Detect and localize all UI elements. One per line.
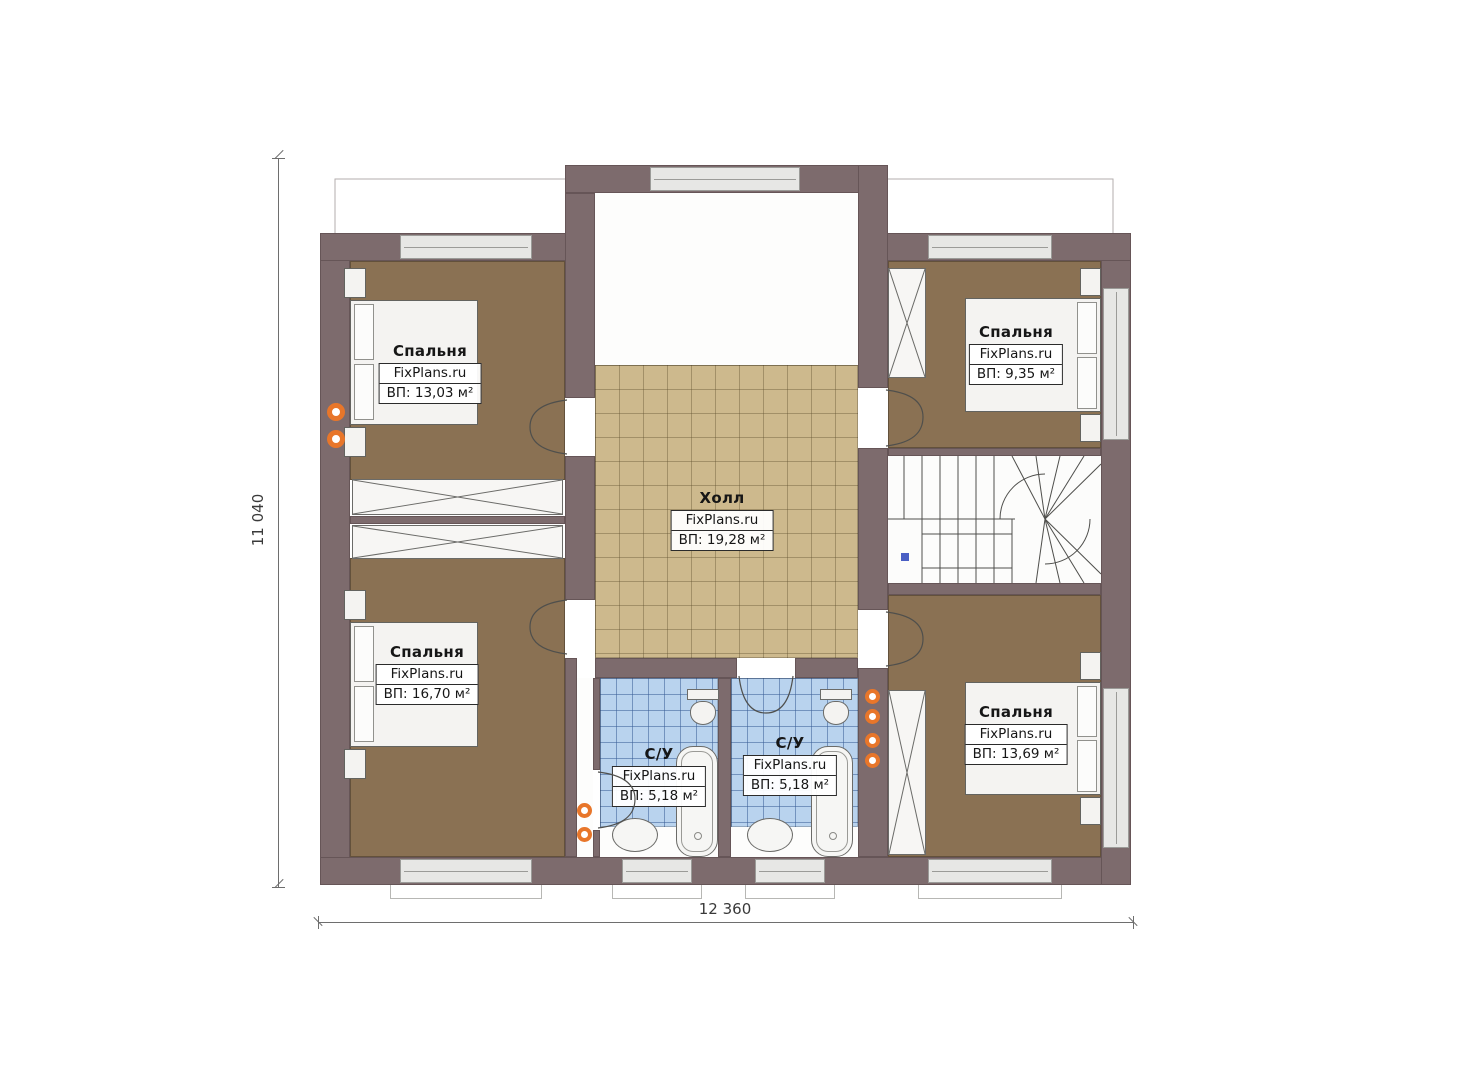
wall-bath1-left-lower [593,830,600,857]
dimension-label-vertical: 11 040 [249,474,267,566]
wall-fixture-marker [577,803,592,818]
room-name: Холл [671,489,774,507]
wall-stairs-bedroom4 [888,583,1101,595]
room-info-box: FixPlans.ru ВП: 9,35 м² [969,344,1063,385]
room-name: С/У [743,734,837,752]
nightstand [344,590,366,620]
room-label-bedroom-4: Спальня FixPlans.ru ВП: 13,69 м² [965,703,1068,765]
room-info-box: FixPlans.ru ВП: 13,03 м² [379,363,482,404]
wall-hall-bath2 [795,658,858,678]
bathtub-drain [694,832,702,840]
roof-outline-left [335,179,565,233]
wall-fixture-marker [327,403,345,421]
wall-bath-divider [718,678,731,857]
room-brand: FixPlans.ru [380,364,481,383]
nightstand [1080,268,1101,296]
wall-fixture-marker [865,709,880,724]
wall-fixture-marker [865,689,880,704]
wardrobe [352,479,563,515]
room-label-hall: Холл FixPlans.ru ВП: 19,28 м² [671,489,774,551]
void-open-below [595,193,858,365]
room-brand: FixPlans.ru [613,767,705,786]
window-tower-top [650,167,800,191]
pillow [1077,357,1097,409]
toilet [823,701,849,725]
pillow [1077,686,1097,737]
room-area: ВП: 5,18 м² [744,775,836,795]
room-brand: FixPlans.ru [966,725,1067,744]
room-name: Спальня [965,703,1068,721]
room-name: Спальня [379,342,482,360]
staircase-drawing [888,456,1101,583]
pillow [354,686,374,742]
wall-hall-left-upper [565,193,595,398]
stair-start-marker [901,553,909,561]
nightstand [344,268,366,298]
pillow [354,364,374,420]
window-sill [745,885,835,899]
nightstand [344,427,366,457]
window-bedroom3-bottom [400,859,532,883]
wardrobe [352,525,563,559]
wall-bath1-left-upper [593,678,600,770]
room-name: С/У [612,745,706,763]
pillow [354,626,374,682]
toilet-tank [820,689,852,700]
room-info-box: FixPlans.ru ВП: 5,18 м² [743,755,837,796]
pillow [354,304,374,360]
wall-hall-left-middle [565,456,595,600]
room-area: ВП: 13,03 м² [380,383,481,403]
window-bedroom4-bottom [928,859,1052,883]
wardrobe [888,690,926,855]
wall-hall-bath1 [595,658,737,678]
dimension-label-horizontal: 12 360 [675,900,775,918]
room-area: ВП: 5,18 м² [613,786,705,806]
window-bathroom2-bottom [755,859,825,883]
window-sill [390,885,542,899]
wall-outer-left [320,233,350,885]
pillow [1077,740,1097,792]
room-info-box: FixPlans.ru ВП: 19,28 м² [671,510,774,551]
wall-fixture-marker [577,827,592,842]
wall-fixture-marker [865,753,880,768]
roof-outline-right [888,179,1113,233]
pillow [1077,302,1097,354]
room-label-bathroom-1: С/У FixPlans.ru ВП: 5,18 м² [612,745,706,807]
room-brand: FixPlans.ru [744,756,836,775]
nightstand [1080,797,1101,825]
floor-plan-canvas: Спальня FixPlans.ru ВП: 13,03 м² Спальня… [0,0,1474,1080]
dimension-line-vertical [278,158,279,888]
window-bedroom4-right [1103,688,1129,848]
room-info-box: FixPlans.ru ВП: 13,69 м² [965,724,1068,765]
wall-hall-right-middle [858,448,888,610]
room-name: Спальня [376,643,479,661]
wardrobe [888,268,926,378]
toilet-tank [687,689,719,700]
wall-bedroom2-stairs [888,448,1101,456]
room-name: Спальня [969,323,1063,341]
nightstand [1080,652,1101,680]
window-bedroom2-right [1103,288,1129,440]
room-label-bathroom-2: С/У FixPlans.ru ВП: 5,18 м² [743,734,837,796]
room-area: ВП: 19,28 м² [672,530,773,550]
wall-hall-right-upper [858,165,888,388]
nightstand [1080,414,1101,442]
room-label-bedroom-2: Спальня FixPlans.ru ВП: 9,35 м² [969,323,1063,385]
room-brand: FixPlans.ru [970,345,1062,364]
bathtub-drain [829,832,837,840]
wall-bedroom3-corridor [565,658,577,857]
room-label-bedroom-1: Спальня FixPlans.ru ВП: 13,03 м² [379,342,482,404]
window-bathroom1-bottom [622,859,692,883]
window-sill [918,885,1062,899]
wall-fixture-marker [865,733,880,748]
toilet [690,701,716,725]
window-sill [612,885,702,899]
sink [747,818,793,852]
room-label-bedroom-3: Спальня FixPlans.ru ВП: 16,70 м² [376,643,479,705]
sink [612,818,658,852]
room-info-box: FixPlans.ru ВП: 16,70 м² [376,664,479,705]
room-area: ВП: 9,35 м² [970,364,1062,384]
staircase [888,456,1101,583]
window-bedroom1-top [400,235,532,259]
room-area: ВП: 16,70 м² [377,684,478,704]
wall-fixture-marker [327,430,345,448]
wall-wardrobe-divider [350,516,565,524]
window-bedroom2-top [928,235,1052,259]
dimension-line-horizontal [318,922,1133,923]
room-area: ВП: 13,69 м² [966,744,1067,764]
nightstand [344,749,366,779]
room-brand: FixPlans.ru [672,511,773,530]
room-brand: FixPlans.ru [377,665,478,684]
room-info-box: FixPlans.ru ВП: 5,18 м² [612,766,706,807]
